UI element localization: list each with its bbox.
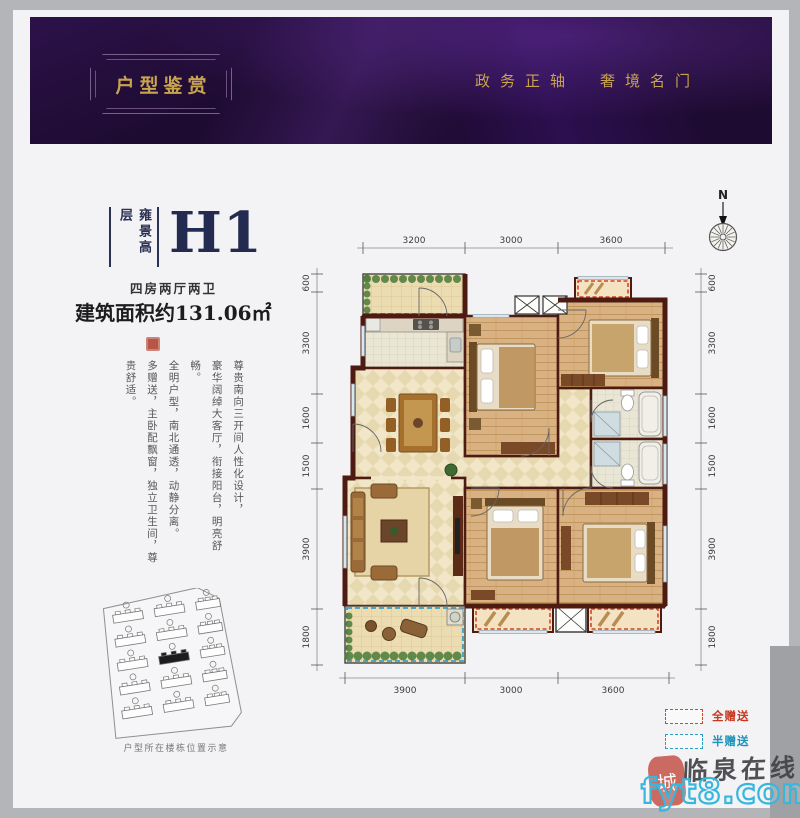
description-line: 豪华阔绰大客厅，衔接阳台，明亮舒畅。 <box>184 360 227 565</box>
dim-top-2: 3000 <box>500 236 523 246</box>
dim-left-6: 1800 <box>302 625 312 648</box>
room-bedroom-4 <box>465 488 558 606</box>
dim-right-5: 3900 <box>708 537 718 560</box>
banner: 户型鉴赏 政务正轴 奢境名门 <box>30 17 772 144</box>
description-line: 尊贵南向三开间人性化设计， <box>227 360 249 565</box>
full-gift-label: 全赠送 <box>712 708 750 724</box>
dim-left-1: 600 <box>302 274 312 291</box>
room-bedroom-3 <box>558 300 665 388</box>
watermark-site-url: fyt8.com <box>641 772 800 812</box>
dim-right-1: 600 <box>708 274 718 291</box>
watermark: 城 临泉在线 fyt8.com <box>641 750 800 816</box>
full-gift-swatch-icon <box>665 709 703 724</box>
bay-window-bottom-right <box>588 606 661 632</box>
dim-top-1: 3200 <box>403 236 426 246</box>
dim-bottom-2: 3000 <box>500 686 523 696</box>
brochure-page: 户型鉴赏 政务正轴 奢境名门 雍景高层 H1 四房两厅两卫 建筑面积约131.0… <box>13 10 789 808</box>
rooms-label: 四房两厅两卫 <box>130 278 217 297</box>
dim-left-5: 3900 <box>302 537 312 560</box>
dim-bottom-1: 3900 <box>394 686 417 696</box>
legend-half-gift: 半赠送 <box>665 733 750 749</box>
dim-right-3: 1600 <box>708 406 718 429</box>
room-bathroom-2 <box>591 439 665 488</box>
floor-plan: 3200 3000 3600 3900 3000 3600 600 3300 1… <box>301 226 725 700</box>
seal-icon <box>146 337 160 351</box>
dim-left-3: 1600 <box>302 406 312 429</box>
bay-window-top <box>575 278 631 300</box>
unit-code: H1 <box>169 207 263 260</box>
dim-left-2: 3300 <box>302 331 312 354</box>
dim-bottom-3: 3600 <box>602 686 625 696</box>
dim-right-2: 3300 <box>708 331 718 354</box>
half-gift-swatch-icon <box>665 734 703 749</box>
plant-pot <box>445 464 457 476</box>
unit-logo: 雍景高层 H1 <box>109 207 263 267</box>
badge-frame: 户型鉴赏 <box>90 54 232 114</box>
site-plan <box>91 588 261 740</box>
room-bedroom-2 <box>465 316 558 456</box>
room-bathroom-1 <box>591 388 665 439</box>
dim-top-3: 3600 <box>600 236 623 246</box>
bay-window-bottom-left <box>473 606 553 632</box>
area-label: 建筑面积约131.06㎡ <box>75 297 272 326</box>
unit-series-label: 雍景高层 <box>109 207 159 267</box>
dining-table <box>386 394 450 452</box>
dim-right-6: 1800 <box>708 625 718 648</box>
half-gift-label: 半赠送 <box>712 733 750 749</box>
unit-description: 尊贵南向三开间人性化设计， 豪华阔绰大客厅，衔接阳台，明亮舒畅。 全明户型，南北… <box>119 360 248 565</box>
banner-slogan: 政务正轴 奢境名门 <box>475 70 700 91</box>
dim-right-4: 1500 <box>708 454 718 477</box>
description-line: 全明户型，南北通透，动静分离。 <box>162 360 184 565</box>
room-living <box>345 478 465 606</box>
site-plan-caption: 户型所在楼栋位置示意 <box>93 741 259 754</box>
legend-full-gift: 全赠送 <box>665 708 750 724</box>
room-kitchen <box>363 316 465 368</box>
dim-left-4: 1500 <box>302 454 312 477</box>
room-master-bedroom <box>558 488 665 606</box>
badge-title: 户型鉴赏 <box>110 71 211 98</box>
compass-n-label: N <box>718 188 728 202</box>
description-line: 多赠送，主卧配飘窗，独立卫生间，尊贵舒适。 <box>119 360 162 565</box>
